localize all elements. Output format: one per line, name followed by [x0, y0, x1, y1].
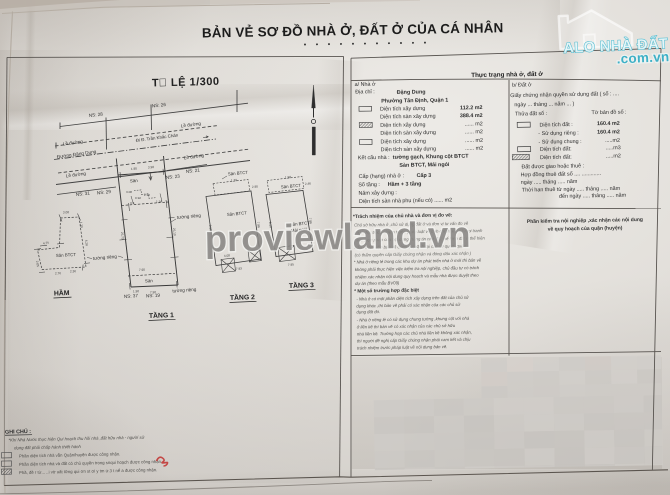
svg-text:HẦM: HẦM	[54, 287, 70, 298]
svg-text:2.46: 2.46	[305, 181, 312, 186]
svg-text:.....m3: .....m3	[606, 145, 621, 151]
svg-text:nhà liền kề. Trường hợp các ch: nhà liền kề. Trường hợp các chủ nhà liền…	[357, 330, 472, 337]
svg-text:3.08: 3.08	[63, 210, 70, 214]
svg-text:160.4 m2: 160.4 m2	[597, 129, 620, 135]
svg-text:Lề đường: Lề đường	[63, 139, 84, 147]
svg-text:nhiệm xác nhận nội dung quy ho: nhiệm xác nhận nội dung quy hoạch và mẫu…	[355, 273, 479, 280]
svg-text:...... m2: ...... m2	[465, 121, 483, 127]
svg-text:GHI CHÚ :: GHI CHÚ :	[5, 428, 31, 436]
svg-text:Đường Đặng Dung: Đường Đặng Dung	[57, 149, 98, 160]
svg-text:thì người đề nghị cấp Giấy chứ: thì người đề nghị cấp Giấy chứng nhận ph…	[357, 337, 471, 344]
svg-text:.com.vn: .com.vn	[616, 49, 669, 66]
svg-text:NS: 21: NS: 21	[186, 168, 201, 174]
svg-text:Cấp 3: Cấp 3	[417, 172, 432, 179]
svg-text:2.05: 2.05	[35, 260, 40, 267]
svg-text:NS: 37: NS: 37	[124, 293, 139, 299]
svg-text:NS: 28: NS: 28	[89, 112, 104, 118]
svg-text:Lề đường: Lề đường	[181, 121, 202, 129]
svg-text:NS: 26: NS: 26	[152, 102, 167, 108]
svg-text:.....m2: .....m2	[605, 138, 620, 144]
svg-text:1.30: 1.30	[79, 222, 84, 229]
svg-text:Diện tích sàn xây dựng: Diện tích sàn xây dựng	[380, 114, 436, 121]
svg-text:- Sử dụng riêng :: - Sử dụng riêng :	[538, 129, 579, 137]
svg-text:7.93: 7.93	[236, 266, 243, 271]
svg-text:BẢN VẺ SƠ ĐỒ NHÀ Ở, ĐẤT Ở CỦA: BẢN VẺ SƠ ĐỒ NHÀ Ở, ĐẤT Ở CỦA CÁ NHÂN	[202, 20, 504, 40]
svg-text:2.76: 2.76	[55, 271, 62, 275]
svg-text:3.5: 3.5	[130, 201, 135, 205]
svg-text:...... m2: ...... m2	[465, 146, 483, 152]
svg-text:Số tầng :: Số tầng :	[358, 182, 380, 188]
svg-text:Lề đường: Lề đường	[66, 171, 87, 179]
svg-text:đến ngày ..... tháng ..... năm: đến ngày ..... tháng ..... năm	[559, 193, 627, 200]
svg-text:...... m2: ...... m2	[465, 138, 483, 144]
svg-text:Lề đường: Lề đường	[184, 153, 205, 161]
svg-text:7.90: 7.90	[139, 268, 146, 272]
svg-text:trách nhiệm trước pháp luật về: trách nhiệm trước pháp luật về nội dung …	[357, 344, 447, 350]
svg-text:Tᷠ LỆ 1/300: Tᷠ LỆ 1/300	[152, 75, 220, 90]
svg-text:Đất được giao hoặc thuê :: Đất được giao hoặc thuê :	[521, 163, 584, 170]
svg-text:Phần diện tích nhà vẫn Quận/hu: Phần diện tích nhà vẫn Quận/huyện được c…	[19, 451, 120, 458]
svg-text:TẦNG 1: TẦNG 1	[149, 309, 174, 320]
svg-text:Diện tích đất:: Diện tích đất:	[540, 146, 572, 153]
svg-text:* Một số trường hợp đặc biệt: * Một số trường hợp đặc biệt	[354, 287, 419, 294]
svg-text:7.95: 7.95	[288, 262, 295, 267]
svg-text:Hợp đồng thuê đất số .... ....: Hợp đồng thuê đất số .... .............	[521, 171, 602, 178]
svg-text:Đi Đ. Trần Khắc Chân: Đi Đ. Trần Khắc Chân	[135, 132, 179, 143]
svg-text:- Sử dụng chung :: - Sử dụng chung :	[538, 138, 581, 146]
svg-text:Năm xây dựng :: Năm xây dựng :	[358, 190, 396, 197]
svg-text:a/ Nhà ở: a/ Nhà ở	[355, 81, 376, 88]
svg-text:Diện tích sàn xây dựng: Diện tích sàn xây dựng	[380, 130, 436, 137]
svg-text:3.98: 3.98	[148, 165, 155, 170]
svg-text:tường gạch, Khung cột BTCT: tường gạch, Khung cột BTCT	[393, 154, 470, 161]
svg-text:không phải thực hiện việc kiểm: không phải thực hiện việc kiểm tra nội n…	[355, 265, 480, 272]
svg-text:* Nhà ở riêng lẻ trong các khu: * Nhà ở riêng lẻ trong các khu dự án phá…	[354, 258, 482, 265]
svg-text:Sân: Sân	[145, 278, 154, 283]
svg-text:2.92: 2.92	[144, 193, 150, 197]
svg-text:1.98: 1.98	[285, 175, 292, 180]
svg-text:Giấy chứng nhận quyền sử dụng: Giấy chứng nhận quyền sử dụng đất ( số :…	[510, 90, 619, 99]
svg-text:Diện tích đất :: Diện tích đất :	[539, 122, 572, 129]
svg-text:NS: 29: NS: 29	[97, 189, 112, 195]
svg-text:1.90: 1.90	[131, 166, 138, 171]
svg-text:Kết cấu nhà :: Kết cấu nhà :	[358, 155, 390, 161]
svg-text:Sân BTCT: Sân BTCT	[56, 252, 77, 258]
svg-text:về quy hoạch của quận (huyện): về quy hoạch của quận (huyện)	[548, 225, 623, 232]
svg-text:Địa chỉ :: Địa chỉ :	[355, 88, 375, 95]
svg-text:.....m2: .....m2	[606, 153, 621, 159]
svg-text:Phần diện tích nhà và đất có c: Phần diện tích nhà và đất có chủ quyền t…	[19, 459, 162, 467]
svg-text:b/ Đất ở: b/ Đất ở	[512, 81, 532, 88]
svg-text:Sân BTCT: Sân BTCT	[227, 210, 248, 217]
svg-text:Sàn BTCT, Mái ngói: Sàn BTCT, Mái ngói	[399, 162, 450, 169]
svg-text:Phần kiểm tra nội nghiệp ,xác: Phần kiểm tra nội nghiệp ,xác nhận các n…	[527, 216, 643, 225]
svg-text:Sân BTCT: Sân BTCT	[228, 170, 249, 177]
svg-text:1.90: 1.90	[133, 289, 140, 293]
svg-text:112.2 m2: 112.2 m2	[460, 105, 483, 111]
svg-text:...... m2: ...... m2	[465, 129, 483, 135]
svg-text:Đặng Dung: Đặng Dung	[397, 89, 426, 95]
svg-text:*Khi Nhà Nước thực hiện Qui ho: *Khi Nhà Nước thực hiện Qui hoạch thu hồ…	[8, 435, 144, 443]
svg-text:NS: 31: NS: 31	[76, 191, 91, 197]
svg-text:tường riêng: tường riêng	[93, 254, 118, 261]
svg-text:Thực trạng nhà ở, đất ở: Thực trạng nhà ở, đất ở	[471, 70, 543, 79]
svg-text:1.34: 1.34	[156, 200, 162, 204]
svg-text:Diện tích xây dựng: Diện tích xây dựng	[380, 122, 425, 129]
svg-text:2.90: 2.90	[252, 184, 259, 189]
svg-text:25.10: 25.10	[172, 228, 177, 236]
svg-text:Diện tích sàn xây dựng: Diện tích sàn xây dựng	[381, 146, 437, 153]
svg-text:Diện tích xây dựng: Diện tích xây dựng	[380, 106, 425, 113]
svg-text:Hầm + 3 tầng: Hầm + 3 tầng	[388, 181, 422, 188]
svg-text:160.4 m2: 160.4 m2	[597, 121, 620, 127]
svg-text:Diện tích sàn nhà phụ (nếu có): Diện tích sàn nhà phụ (nếu có) ...... m2	[359, 197, 452, 204]
svg-text:tường riêng: tường riêng	[177, 213, 202, 220]
svg-text:388.4 m2: 388.4 m2	[460, 113, 483, 119]
svg-text:Diện tích xây dựng: Diện tích xây dựng	[380, 139, 425, 146]
svg-text:- Nhà ở có một phần diện tích: - Nhà ở có một phần diện tích xây dựng t…	[356, 295, 469, 302]
svg-text:25.73: 25.73	[120, 232, 125, 240]
svg-text:1.79: 1.79	[231, 178, 238, 183]
svg-text:TẦNG 3: TẦNG 3	[289, 279, 314, 290]
svg-text:5.28: 5.28	[84, 240, 89, 247]
svg-text:TẦNG 2: TẦNG 2	[230, 291, 255, 302]
svg-text:ngày ..... tháng ..... năm: ngày ..... tháng ..... năm	[521, 179, 578, 186]
svg-text:2.36: 2.36	[70, 269, 77, 273]
svg-text:NS: 23: NS: 23	[166, 174, 181, 180]
svg-text:dự án (theo mẫu BV09): dự án (theo mẫu BV09)	[355, 280, 400, 286]
svg-text:Sân BTCT: Sân BTCT	[281, 183, 302, 190]
svg-text:tường riêng: tường riêng	[172, 287, 197, 294]
svg-text:ở liền kề thì bản vẽ có xác nh: ở liền kề thì bản vẽ có xác nhận của các…	[357, 323, 456, 330]
svg-text:- Nhà ở riêng lẻ có sử dụng ch: - Nhà ở riêng lẻ có sử dụng chung tường …	[357, 316, 470, 323]
svg-text:0.92: 0.92	[135, 196, 141, 200]
svg-text:Cấp (hạng) nhà ở :: Cấp (hạng) nhà ở :	[359, 172, 405, 180]
svg-text:7.90: 7.90	[150, 290, 157, 294]
svg-text:dụng đất đó.: dụng đất đó.	[356, 309, 380, 314]
svg-text:ngày ... tháng ... năm ... ): ngày ... tháng ... năm ... )	[514, 101, 574, 108]
svg-text:Phường Tân Định, Quận 1: Phường Tân Định, Quận 1	[381, 98, 448, 105]
svg-text:Tờ bản đồ số :: Tờ bản đồ số :	[591, 110, 626, 117]
svg-text:dụng khác ,thì bản vẽ phải có: dụng khác ,thì bản vẽ phải có xác nhận c…	[356, 302, 460, 309]
svg-text:dụng đất phải chấp hành thiết: dụng đất phải chấp hành thiết hành	[14, 444, 81, 450]
svg-text:4.75: 4.75	[43, 241, 50, 246]
svg-text:Diện tích đất:: Diện tích đất:	[540, 155, 572, 162]
svg-text:Sân: Sân	[130, 178, 139, 184]
svg-text:proviewland.vn: proviewland.vn	[204, 214, 470, 260]
svg-text:Phầ, đề r từ... ..i vờ uất t: Phầ, đề r từ... ..i vờ uất tững qui ơn s…	[19, 467, 157, 475]
svg-text:3.08: 3.08	[126, 190, 132, 194]
svg-text:Thửa đất số :: Thửa đất số :	[515, 110, 547, 118]
